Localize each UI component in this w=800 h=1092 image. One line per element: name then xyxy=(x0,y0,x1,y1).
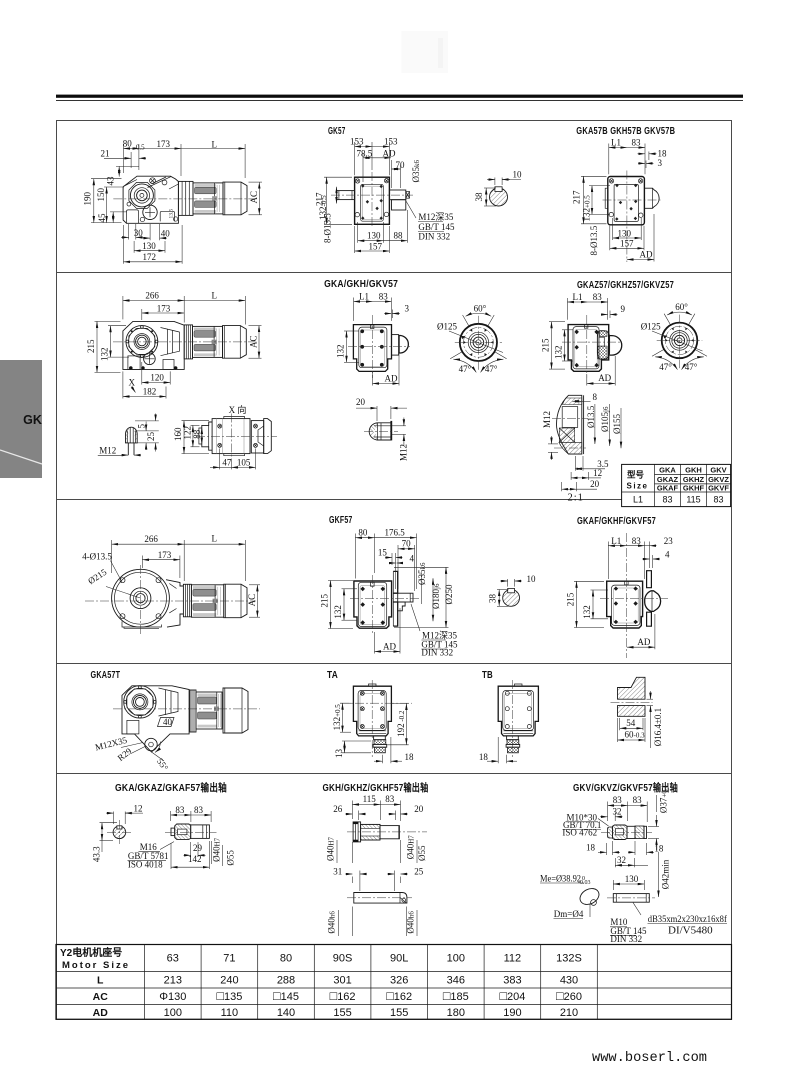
svg-text:215: 215 xyxy=(86,339,96,353)
svg-text:18: 18 xyxy=(586,842,596,852)
svg-text:83: 83 xyxy=(713,495,723,505)
svg-text:18: 18 xyxy=(654,843,664,853)
svg-text:120: 120 xyxy=(150,373,164,383)
svg-text:83: 83 xyxy=(662,495,672,505)
svg-text:132: 132 xyxy=(582,605,592,619)
svg-text:60°: 60° xyxy=(675,302,688,312)
svg-text:23: 23 xyxy=(664,536,674,546)
svg-text:Motor Size: Motor Size xyxy=(62,960,130,971)
svg-text:70: 70 xyxy=(402,539,412,549)
svg-text:63: 63 xyxy=(167,953,179,965)
svg-text:GKA: GKA xyxy=(659,465,676,474)
svg-text:GK57: GK57 xyxy=(328,125,346,137)
svg-text:140: 140 xyxy=(277,1007,295,1019)
svg-text:X: X xyxy=(129,377,136,387)
svg-text:173: 173 xyxy=(157,139,171,149)
svg-text:383: 383 xyxy=(503,975,521,987)
svg-text:AD: AD xyxy=(383,148,396,158)
svg-text:AD: AD xyxy=(637,637,650,647)
svg-text:88: 88 xyxy=(192,429,202,439)
svg-text:132: 132 xyxy=(336,345,346,359)
svg-text:□162: □162 xyxy=(386,989,412,1003)
svg-text:M12: M12 xyxy=(99,445,116,455)
svg-text:157: 157 xyxy=(620,238,634,248)
svg-text:190: 190 xyxy=(503,1007,521,1019)
svg-text:GKA57T: GKA57T xyxy=(91,669,121,681)
svg-text:Ø250: Ø250 xyxy=(444,584,454,604)
svg-text:Ø16.4±0.1: Ø16.4±0.1 xyxy=(653,708,663,746)
svg-text:Y2电机机座号: Y2电机机座号 xyxy=(60,946,122,959)
svg-text:153: 153 xyxy=(350,137,364,147)
svg-text:29: 29 xyxy=(193,843,203,853)
svg-text:25: 25 xyxy=(146,432,156,442)
svg-text:GKH: GKH xyxy=(685,465,702,474)
svg-text:L1: L1 xyxy=(611,138,621,148)
svg-text:R29: R29 xyxy=(116,746,134,763)
svg-text:4: 4 xyxy=(410,554,415,564)
svg-text:18: 18 xyxy=(479,752,489,762)
svg-text:83: 83 xyxy=(175,805,185,815)
svg-text:AD: AD xyxy=(383,642,396,652)
svg-text:Ø35k6: Ø35k6 xyxy=(417,562,427,585)
svg-text:150: 150 xyxy=(96,188,106,202)
svg-text:AC: AC xyxy=(249,191,259,204)
svg-text:GKVF: GKVF xyxy=(708,484,729,493)
svg-text:ISO 4762: ISO 4762 xyxy=(562,828,597,838)
svg-text:3: 3 xyxy=(405,304,410,314)
svg-text:Ø155: Ø155 xyxy=(612,414,622,434)
svg-text:GKF57: GKF57 xyxy=(329,514,353,526)
svg-text:L1: L1 xyxy=(633,495,643,505)
svg-text:266: 266 xyxy=(144,534,158,544)
svg-text:190: 190 xyxy=(83,192,93,206)
svg-text:70: 70 xyxy=(396,160,406,170)
svg-text:18: 18 xyxy=(405,752,415,762)
svg-text:60-0.3: 60-0.3 xyxy=(625,730,646,740)
svg-text:GKV: GKV xyxy=(710,465,726,474)
svg-text:AC: AC xyxy=(247,594,257,607)
svg-text:100: 100 xyxy=(447,953,465,965)
svg-text:GKA/GKAZ/GKAF57输出轴: GKA/GKAZ/GKAF57输出轴 xyxy=(115,781,227,794)
svg-text:GKH/GKHZ/GKHF57输出轴: GKH/GKHZ/GKHF57输出轴 xyxy=(323,781,429,794)
svg-text:AD: AD xyxy=(598,373,611,383)
svg-text:20: 20 xyxy=(414,804,424,814)
svg-text:38: 38 xyxy=(474,192,484,202)
svg-text:DI/V5480: DI/V5480 xyxy=(668,924,713,936)
svg-text:AD: AD xyxy=(640,250,653,260)
svg-text:83: 83 xyxy=(194,805,204,815)
svg-text:Ø180j6: Ø180j6 xyxy=(431,583,441,609)
svg-text:45: 45 xyxy=(97,213,107,223)
svg-text:47°: 47° xyxy=(485,364,498,374)
svg-text:132+0.5: 132+0.5 xyxy=(332,704,342,731)
svg-text:18: 18 xyxy=(658,148,668,158)
svg-text:20: 20 xyxy=(356,397,366,407)
svg-text:L1: L1 xyxy=(359,292,369,302)
svg-text:83: 83 xyxy=(379,292,389,302)
svg-text:GB/T 145: GB/T 145 xyxy=(418,222,455,232)
svg-text:105: 105 xyxy=(237,458,251,468)
svg-text:8-Ø13.5: 8-Ø13.5 xyxy=(589,225,599,255)
svg-text:GKAZ57/GKHZ57/GKVZ57: GKAZ57/GKHZ57/GKVZ57 xyxy=(577,279,674,291)
svg-text:130: 130 xyxy=(618,228,632,238)
svg-text:4-Ø13.5: 4-Ø13.5 xyxy=(82,552,112,562)
svg-text:L: L xyxy=(212,140,218,150)
svg-text:Ø55: Ø55 xyxy=(417,845,427,861)
svg-text:L1: L1 xyxy=(573,292,583,302)
svg-text:30: 30 xyxy=(134,228,144,238)
svg-text:Ø40H7: Ø40H7 xyxy=(211,837,221,862)
svg-text:83: 83 xyxy=(633,795,643,805)
svg-text:DIN 332: DIN 332 xyxy=(610,934,642,944)
svg-text:www.boserl.com: www.boserl.com xyxy=(592,1051,707,1066)
svg-text:80: 80 xyxy=(123,139,133,149)
svg-text:213: 213 xyxy=(164,975,182,987)
svg-text:X 向: X 向 xyxy=(229,404,247,415)
svg-text:142: 142 xyxy=(188,854,202,864)
svg-text:□145: □145 xyxy=(273,989,299,1003)
svg-text:L: L xyxy=(97,975,104,987)
svg-text:38: 38 xyxy=(488,594,498,604)
svg-text:Φ130: Φ130 xyxy=(159,991,186,1003)
svg-text:301: 301 xyxy=(333,975,351,987)
svg-text:47: 47 xyxy=(222,458,232,468)
svg-text:dB35xm2x230xz16x8f: dB35xm2x230xz16x8f xyxy=(648,914,727,924)
svg-text:132+0.5: 132+0.5 xyxy=(582,195,592,222)
svg-text:5: 5 xyxy=(137,424,147,429)
svg-text:266: 266 xyxy=(145,291,159,301)
svg-text:40: 40 xyxy=(161,228,171,238)
svg-text:55°: 55° xyxy=(155,756,171,772)
svg-text:ISO 4018: ISO 4018 xyxy=(128,859,163,869)
svg-text:型号: 型号 xyxy=(627,470,645,480)
svg-text:M12: M12 xyxy=(542,411,552,428)
svg-text:GKA/GKH/GKV57: GKA/GKH/GKV57 xyxy=(324,278,398,290)
svg-text:346: 346 xyxy=(447,975,465,987)
svg-text:110: 110 xyxy=(221,1007,239,1019)
svg-text:GKHF: GKHF xyxy=(683,484,705,493)
svg-text:83: 83 xyxy=(632,536,642,546)
svg-text:83: 83 xyxy=(613,795,623,805)
svg-text:182: 182 xyxy=(143,386,157,396)
svg-text:47°: 47° xyxy=(685,362,698,372)
svg-text:210: 210 xyxy=(560,1007,578,1019)
svg-text:157: 157 xyxy=(369,241,383,251)
svg-text:115: 115 xyxy=(686,495,700,505)
svg-text:215: 215 xyxy=(320,594,330,608)
svg-text:GKVZ: GKVZ xyxy=(708,475,729,484)
svg-text:31: 31 xyxy=(333,867,342,877)
svg-text:240: 240 xyxy=(220,975,238,987)
svg-text:13: 13 xyxy=(334,749,344,759)
svg-text:10: 10 xyxy=(527,574,537,584)
svg-text:12: 12 xyxy=(593,468,602,478)
svg-text:Size: Size xyxy=(627,482,649,491)
svg-text:TA: TA xyxy=(327,669,338,681)
svg-text:8: 8 xyxy=(593,392,598,402)
svg-text:32: 32 xyxy=(613,807,622,817)
svg-text:47°: 47° xyxy=(459,364,472,374)
svg-text:□260: □260 xyxy=(556,989,582,1003)
svg-text:13.5: 13.5 xyxy=(169,209,175,219)
svg-text:326: 326 xyxy=(390,975,408,987)
svg-text:Ø35k6: Ø35k6 xyxy=(411,160,421,183)
svg-text:176.5: 176.5 xyxy=(385,528,406,538)
svg-text:40: 40 xyxy=(163,717,173,727)
svg-text:□185: □185 xyxy=(443,989,469,1003)
svg-text:M12: M12 xyxy=(399,444,409,461)
svg-text:122: 122 xyxy=(182,426,192,440)
svg-text:71: 71 xyxy=(223,953,235,965)
svg-text:215: 215 xyxy=(566,592,576,606)
svg-text:88: 88 xyxy=(394,231,404,241)
svg-text:78.5: 78.5 xyxy=(357,148,373,158)
svg-text:60°: 60° xyxy=(474,304,487,314)
svg-text:8-Ø13.5: 8-Ø13.5 xyxy=(323,213,333,243)
svg-text:-0.5: -0.5 xyxy=(134,144,146,152)
svg-text:Dm=Ø4: Dm=Ø4 xyxy=(554,909,584,919)
svg-text:Ø37+0.1: Ø37+0.1 xyxy=(658,784,668,813)
svg-text:217: 217 xyxy=(572,190,582,204)
svg-text:83: 83 xyxy=(632,138,642,148)
svg-text:GK: GK xyxy=(23,413,42,427)
svg-text:L: L xyxy=(212,291,218,301)
svg-text:DIN 332: DIN 332 xyxy=(418,231,450,241)
svg-text:80: 80 xyxy=(358,528,368,538)
svg-text:L1: L1 xyxy=(611,536,621,546)
svg-text:130: 130 xyxy=(625,874,639,884)
svg-text:Ø125: Ø125 xyxy=(641,321,661,331)
svg-text:9: 9 xyxy=(621,304,626,314)
svg-text:83: 83 xyxy=(385,794,395,804)
svg-text:Ø42min: Ø42min xyxy=(660,859,670,889)
svg-text:155: 155 xyxy=(390,1007,408,1019)
svg-text:DIN 332: DIN 332 xyxy=(421,648,453,658)
svg-text:□204: □204 xyxy=(499,989,525,1003)
svg-text:112: 112 xyxy=(504,953,522,965)
svg-text:43: 43 xyxy=(106,176,116,186)
svg-text:288: 288 xyxy=(277,975,295,987)
svg-text:Ø40h6: Ø40h6 xyxy=(405,911,415,934)
svg-text:180: 180 xyxy=(447,1007,465,1019)
svg-text:100: 100 xyxy=(164,1007,182,1019)
svg-text:115: 115 xyxy=(363,794,377,804)
svg-text:Ø40H7: Ø40H7 xyxy=(405,835,415,860)
svg-text:AD: AD xyxy=(385,373,398,383)
svg-text:□135: □135 xyxy=(216,989,242,1003)
svg-text:430: 430 xyxy=(560,975,578,987)
svg-text:AC: AC xyxy=(93,991,109,1003)
svg-text:2:1: 2:1 xyxy=(568,493,584,504)
svg-text:25: 25 xyxy=(414,867,424,877)
svg-text:132: 132 xyxy=(100,348,110,362)
svg-text:Ø125: Ø125 xyxy=(437,322,457,332)
svg-text:153: 153 xyxy=(384,137,398,147)
svg-text:173: 173 xyxy=(158,550,172,560)
svg-text:□162: □162 xyxy=(330,989,356,1003)
svg-text:10: 10 xyxy=(513,170,523,180)
svg-text:54: 54 xyxy=(626,718,636,728)
svg-text:21: 21 xyxy=(101,149,110,159)
svg-text:TB: TB xyxy=(482,669,493,681)
svg-text:47°: 47° xyxy=(659,362,672,372)
svg-text:3: 3 xyxy=(658,158,663,168)
svg-text:GKAF: GKAF xyxy=(657,484,679,493)
svg-text:80: 80 xyxy=(280,953,292,965)
svg-text:20: 20 xyxy=(590,479,600,489)
svg-text:GKHZ: GKHZ xyxy=(683,475,705,484)
svg-text:155: 155 xyxy=(333,1007,351,1019)
svg-text:130: 130 xyxy=(142,241,156,251)
svg-text:173: 173 xyxy=(157,303,171,313)
svg-text:43.3: 43.3 xyxy=(92,846,102,862)
svg-text:Me=Ø38.92: Me=Ø38.92 xyxy=(540,873,581,883)
svg-text:L: L xyxy=(212,534,218,544)
svg-text:192 -0.2: 192 -0.2 xyxy=(396,710,406,737)
svg-text:GKAF/GKHF/GKVF57: GKAF/GKHF/GKVF57 xyxy=(577,515,656,527)
svg-text:132: 132 xyxy=(333,605,343,619)
svg-text:90S: 90S xyxy=(333,953,353,965)
svg-text:12: 12 xyxy=(134,804,143,814)
svg-text:83: 83 xyxy=(593,292,603,302)
svg-text:215: 215 xyxy=(541,338,551,352)
svg-text:M12深35: M12深35 xyxy=(418,212,454,222)
svg-text:132S: 132S xyxy=(556,953,582,965)
svg-text:Ø40h6: Ø40h6 xyxy=(327,911,337,934)
svg-text:26: 26 xyxy=(333,804,343,814)
svg-text:4: 4 xyxy=(665,550,670,560)
svg-text:32: 32 xyxy=(617,855,626,865)
svg-text:90L: 90L xyxy=(390,953,408,965)
svg-text:Ø215: Ø215 xyxy=(86,567,109,587)
svg-text:Ø13.5: Ø13.5 xyxy=(586,405,596,428)
svg-text:AC: AC xyxy=(249,335,259,348)
svg-text:GKA57B GKH57B GKV57B: GKA57B GKH57B GKV57B xyxy=(576,125,675,137)
svg-text:132: 132 xyxy=(554,346,564,360)
svg-text:Ø105j6: Ø105j6 xyxy=(600,406,610,432)
svg-text:172: 172 xyxy=(143,252,157,262)
svg-text:15: 15 xyxy=(378,548,388,558)
svg-text:Ø40H7: Ø40H7 xyxy=(325,836,335,861)
svg-text:GKAZ: GKAZ xyxy=(657,475,679,484)
svg-text:Ø55: Ø55 xyxy=(226,850,236,866)
svg-text:130: 130 xyxy=(367,231,381,241)
svg-text:AD: AD xyxy=(93,1007,109,1019)
